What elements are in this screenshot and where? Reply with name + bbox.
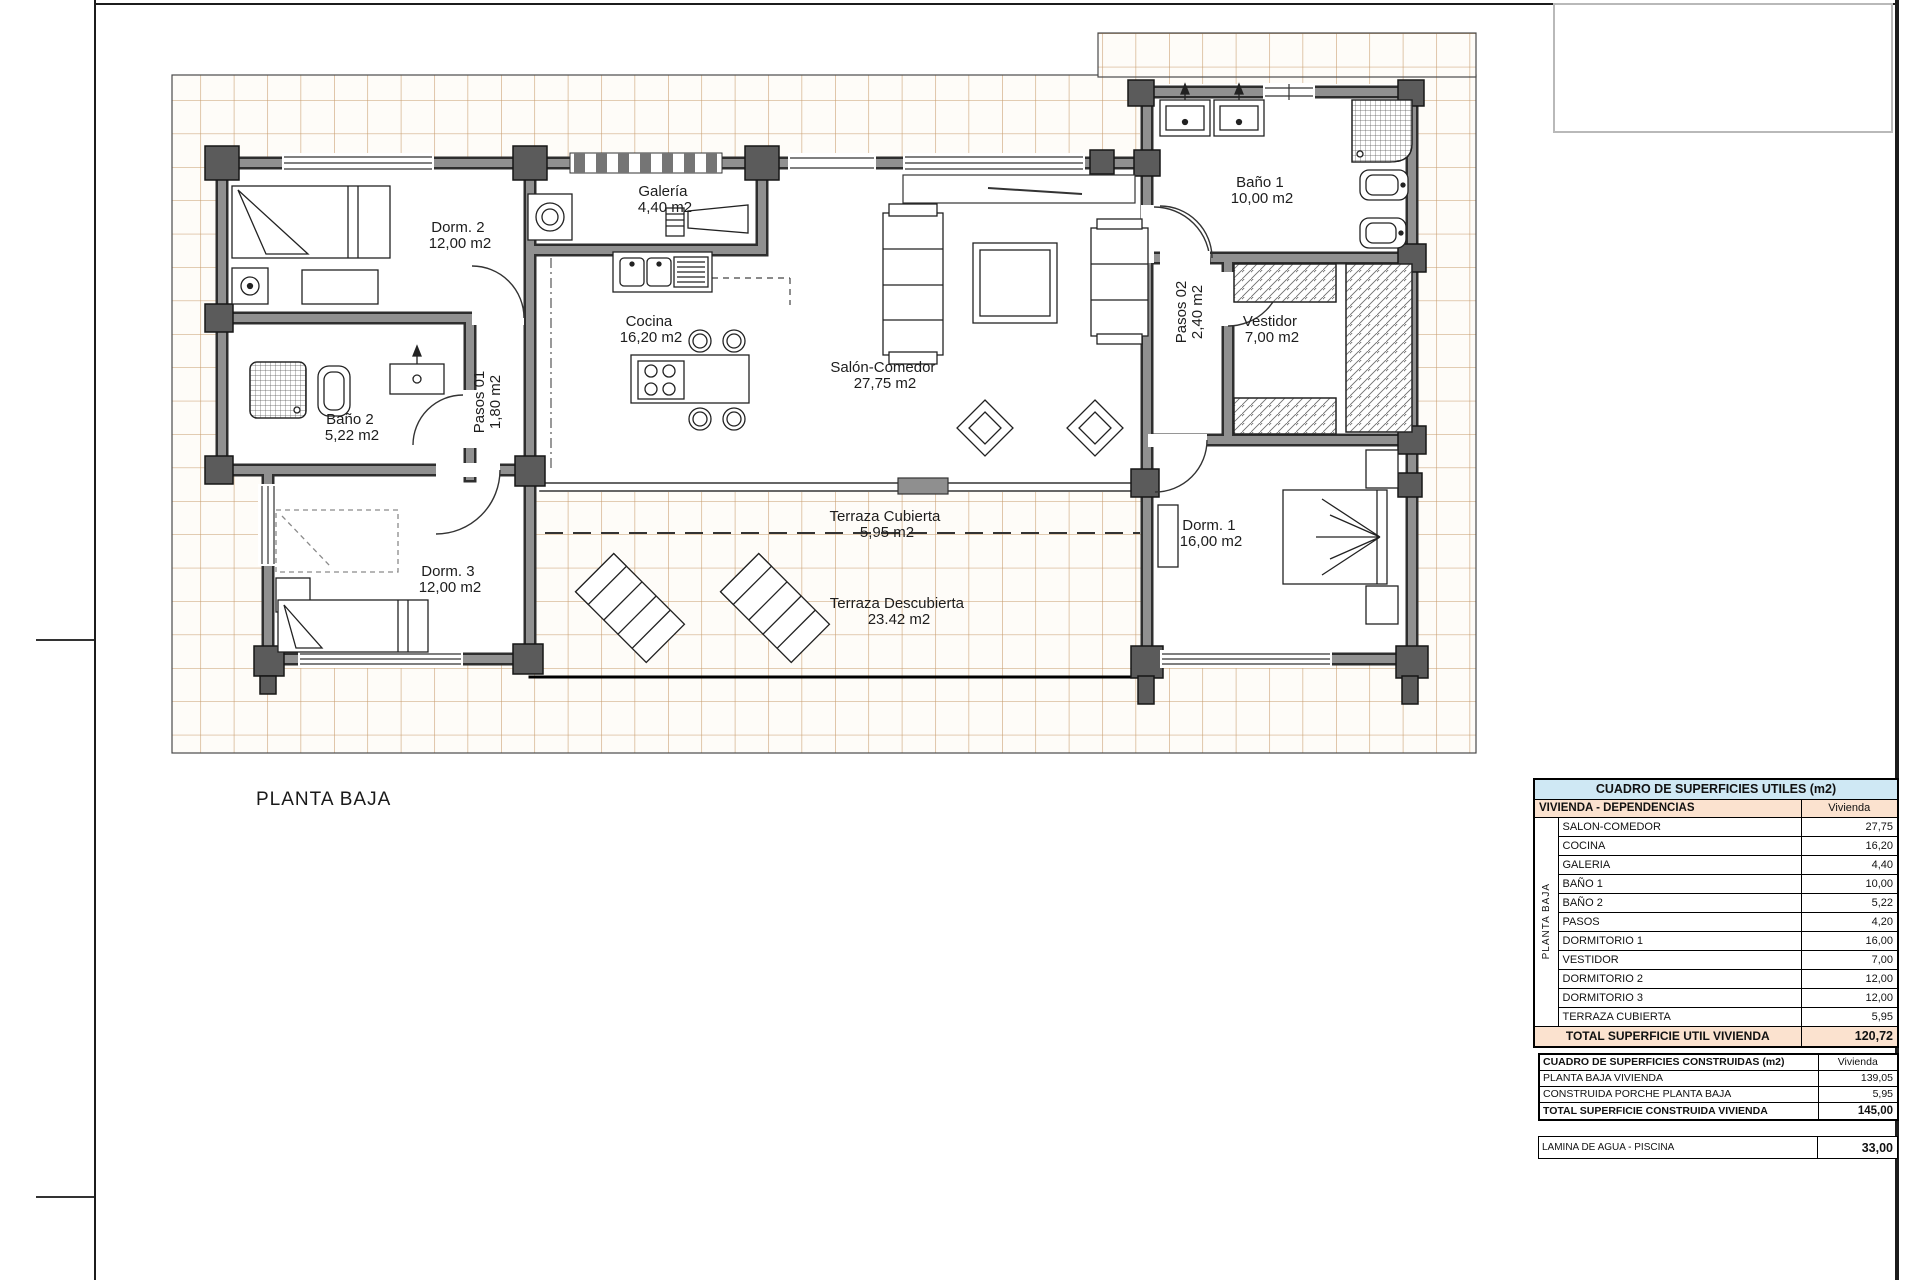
drawing-sheet: Dorm. 2 12,00 m2 Galería 4,40 m2 Cocina … [0, 0, 1920, 1280]
table-row: PLANTA BAJA VIVIENDA139,05 [1539, 1070, 1898, 1086]
row-value: 4,40 [1801, 855, 1898, 874]
row-label: DORMITORIO 2 [1558, 969, 1801, 988]
galeria-glazing [570, 153, 722, 173]
room-label-dorm3: Dorm. 3 12,00 m2 [419, 563, 482, 596]
table-total-row: TOTAL SUPERFICIE UTIL VIVIENDA 120,72 [1534, 1026, 1898, 1047]
floor-plan-svg: Dorm. 2 12,00 m2 Galería 4,40 m2 Cocina … [0, 0, 1520, 830]
dorm2-furniture [232, 186, 390, 304]
room-label-bano1: Baño 1 10,00 m2 [1231, 174, 1294, 207]
svg-text:Pasos 01: Pasos 01 [471, 371, 488, 434]
room-label-dorm2: Dorm. 2 12,00 m2 [429, 219, 492, 252]
empty-title-block [1553, 3, 1893, 133]
row-value: 5,22 [1801, 893, 1898, 912]
row-value: 5,95 [1818, 1086, 1898, 1102]
row-value: 139,05 [1818, 1070, 1898, 1086]
row-label: DORMITORIO 3 [1558, 988, 1801, 1007]
row-label: DORMITORIO 1 [1558, 931, 1801, 950]
room-label-bano2: Baño 2 5,22 m2 [325, 411, 379, 444]
column-header-vivienda: Vivienda [1801, 799, 1898, 817]
row-label: BAÑO 1 [1558, 874, 1801, 893]
table-title: CUADRO DE SUPERFICIES CONSTRUIDAS (m2) [1539, 1054, 1818, 1070]
total-label: TOTAL SUPERFICIE CONSTRUIDA VIVIENDA [1539, 1102, 1818, 1120]
table-row: VIVIENDA - DEPENDENCIAS Vivienda [1534, 799, 1898, 817]
row-value: 16,20 [1801, 836, 1898, 855]
room-label-pasos02: Pasos 02 2,40 m2 [1173, 281, 1206, 344]
row-value: 5,95 [1801, 1007, 1898, 1026]
row-label: CONSTRUIDA PORCHE PLANTA BAJA [1539, 1086, 1818, 1102]
table-row: TERRAZA CUBIERTA5,95 [1534, 1007, 1898, 1026]
row-label: LAMINA DE AGUA - PISCINA [1539, 1137, 1818, 1159]
room-label-cocina: Cocina 16,20 m2 [620, 313, 683, 346]
table-row: CUADRO DE SUPERFICIES CONSTRUIDAS (m2) V… [1539, 1054, 1898, 1070]
svg-text:Pasos 02: Pasos 02 [1173, 281, 1190, 344]
table-row: BAÑO 110,00 [1534, 874, 1898, 893]
room-label-vestidor: Vestidor 7,00 m2 [1243, 313, 1301, 346]
row-value: 16,00 [1801, 931, 1898, 950]
total-value: 120,72 [1801, 1026, 1898, 1047]
table-row: COCINA16,20 [1534, 836, 1898, 855]
row-value: 10,00 [1801, 874, 1898, 893]
row-label: SALON-COMEDOR [1558, 817, 1801, 836]
row-value: 7,00 [1801, 950, 1898, 969]
table-row: PLANTA BAJA SALON-COMEDOR 27,75 [1534, 817, 1898, 836]
room-label-pasos01: Pasos 01 1,80 m2 [471, 371, 504, 434]
total-label: TOTAL SUPERFICIE UTIL VIVIENDA [1534, 1026, 1801, 1047]
svg-text:1,80 m2: 1,80 m2 [487, 375, 504, 429]
table-row: PASOS4,20 [1534, 912, 1898, 931]
table-row: DORMITORIO 312,00 [1534, 988, 1898, 1007]
plan-title: PLANTA BAJA [256, 789, 391, 811]
table-row: DORMITORIO 212,00 [1534, 969, 1898, 988]
table-row: DORMITORIO 116,00 [1534, 931, 1898, 950]
row-label: PLANTA BAJA VIVIENDA [1539, 1070, 1818, 1086]
row-value: 12,00 [1801, 969, 1898, 988]
table-row: CUADRO DE SUPERFICIES UTILES (m2) [1534, 779, 1898, 799]
row-value: 12,00 [1801, 988, 1898, 1007]
table-row: CONSTRUIDA PORCHE PLANTA BAJA5,95 [1539, 1086, 1898, 1102]
table-row: GALERIA4,40 [1534, 855, 1898, 874]
row-label: TERRAZA CUBIERTA [1558, 1007, 1801, 1026]
table-title: CUADRO DE SUPERFICIES UTILES (m2) [1534, 779, 1898, 799]
row-label: GALERIA [1558, 855, 1801, 874]
row-value: 33,00 [1818, 1137, 1898, 1159]
table-row: LAMINA DE AGUA - PISCINA 33,00 [1539, 1137, 1898, 1159]
table-row: VESTIDOR7,00 [1534, 950, 1898, 969]
table-row: BAÑO 25,22 [1534, 893, 1898, 912]
table-superficies-utiles: CUADRO DE SUPERFICIES UTILES (m2) VIVIEN… [1533, 778, 1899, 1048]
row-label: PASOS [1558, 912, 1801, 931]
row-label: BAÑO 2 [1558, 893, 1801, 912]
column-header-vivienda: Vivienda [1818, 1054, 1898, 1070]
room-label-galeria: Galería 4,40 m2 [638, 183, 692, 216]
side-label-planta-baja: PLANTA BAJA [1534, 817, 1558, 1026]
table-superficies-construidas: CUADRO DE SUPERFICIES CONSTRUIDAS (m2) V… [1538, 1053, 1899, 1121]
svg-text:2,40 m2: 2,40 m2 [1189, 285, 1206, 339]
total-value: 145,00 [1818, 1102, 1898, 1120]
fold-mark [36, 1196, 94, 1198]
row-value: 27,75 [1801, 817, 1898, 836]
room-label-dorm1: Dorm. 1 16,00 m2 [1180, 517, 1243, 550]
row-label: COCINA [1558, 836, 1801, 855]
row-value: 4,20 [1801, 912, 1898, 931]
table-total-row: TOTAL SUPERFICIE CONSTRUIDA VIVIENDA 145… [1539, 1102, 1898, 1120]
row-label: VESTIDOR [1558, 950, 1801, 969]
table-piscina: LAMINA DE AGUA - PISCINA 33,00 [1538, 1136, 1898, 1159]
column-header-dependencias: VIVIENDA - DEPENDENCIAS [1534, 799, 1801, 817]
